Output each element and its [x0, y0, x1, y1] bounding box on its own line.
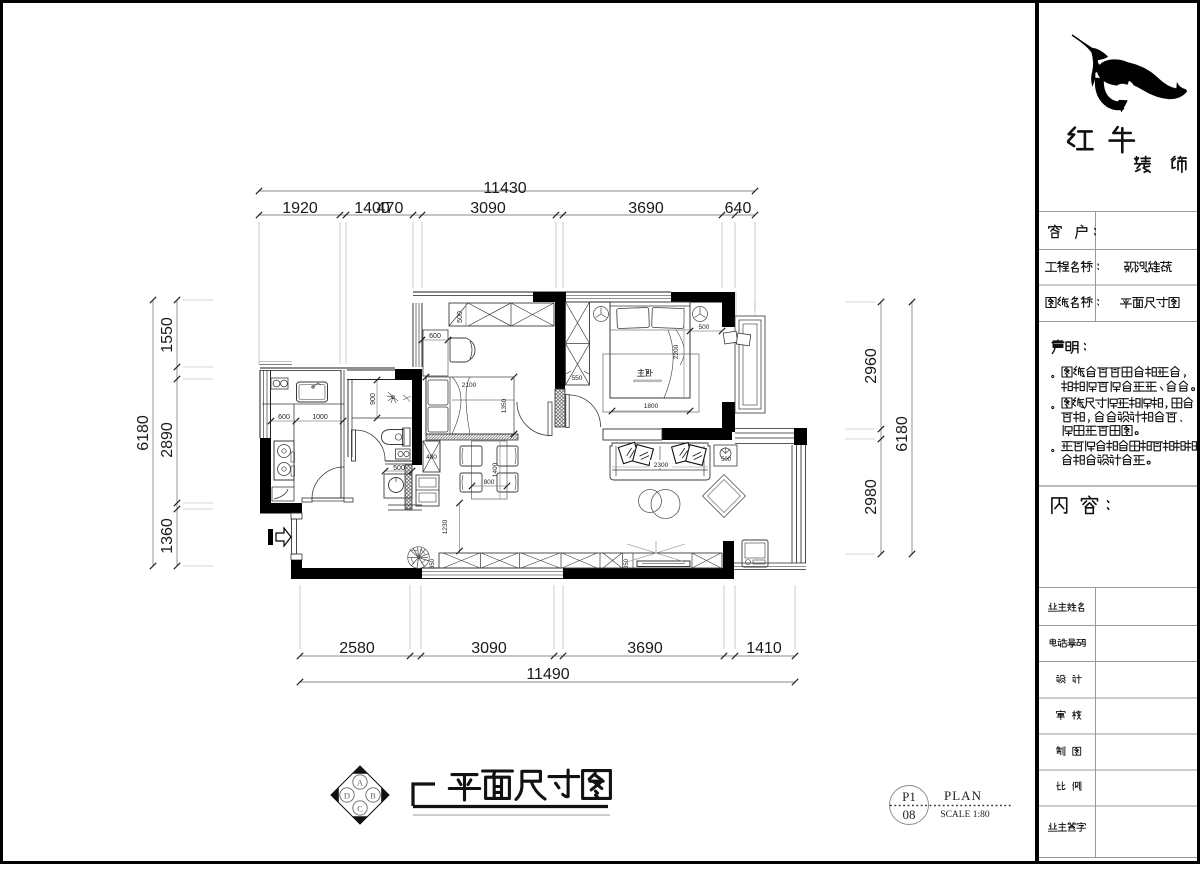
- svg-text:2580: 2580: [339, 640, 375, 657]
- svg-text:1410: 1410: [746, 640, 782, 657]
- svg-text:D: D: [344, 791, 350, 801]
- svg-text:1350: 1350: [501, 398, 508, 413]
- svg-text:1400: 1400: [492, 462, 499, 477]
- svg-text:350: 350: [624, 558, 630, 569]
- svg-text:1000: 1000: [312, 414, 328, 421]
- svg-text:3090: 3090: [471, 640, 507, 657]
- svg-text:3090: 3090: [470, 200, 506, 217]
- svg-text:3690: 3690: [628, 200, 664, 217]
- svg-text:800: 800: [484, 479, 495, 486]
- svg-text:PLAN: PLAN: [944, 788, 982, 803]
- svg-text:6180: 6180: [894, 416, 911, 452]
- svg-text:6180: 6180: [135, 415, 152, 451]
- svg-text:P1: P1: [902, 789, 916, 804]
- svg-text:550: 550: [572, 375, 583, 382]
- svg-text:3690: 3690: [627, 640, 663, 657]
- svg-text:SCALE 1:80: SCALE 1:80: [940, 810, 990, 820]
- svg-text:2200: 2200: [673, 344, 680, 359]
- svg-text:600: 600: [278, 414, 290, 421]
- svg-text:600: 600: [429, 333, 441, 340]
- svg-text:08: 08: [903, 807, 916, 822]
- svg-text:640: 640: [725, 200, 752, 217]
- svg-text:1800: 1800: [644, 403, 659, 410]
- svg-text:11490: 11490: [526, 666, 569, 683]
- svg-text:1550: 1550: [159, 317, 176, 353]
- svg-text:B: B: [370, 791, 376, 801]
- svg-text:1920: 1920: [282, 200, 318, 217]
- svg-text:1360: 1360: [159, 518, 176, 554]
- svg-text:2960: 2960: [863, 348, 880, 384]
- svg-text:C: C: [357, 804, 363, 814]
- svg-text:350: 350: [430, 558, 436, 569]
- svg-text:2980: 2980: [863, 479, 880, 515]
- svg-text:500: 500: [721, 457, 732, 463]
- svg-text:2300: 2300: [654, 462, 669, 469]
- svg-text:500: 500: [457, 311, 464, 323]
- svg-text:2100: 2100: [462, 382, 477, 389]
- svg-text:500: 500: [699, 324, 710, 331]
- svg-text:A: A: [357, 778, 364, 788]
- svg-text:900: 900: [370, 393, 377, 405]
- svg-text:470: 470: [377, 200, 404, 217]
- svg-text:400: 400: [426, 454, 437, 461]
- svg-text:1230: 1230: [442, 519, 449, 534]
- svg-text:11430: 11430: [483, 180, 526, 197]
- svg-text:500: 500: [393, 465, 405, 472]
- svg-text:2890: 2890: [159, 422, 176, 458]
